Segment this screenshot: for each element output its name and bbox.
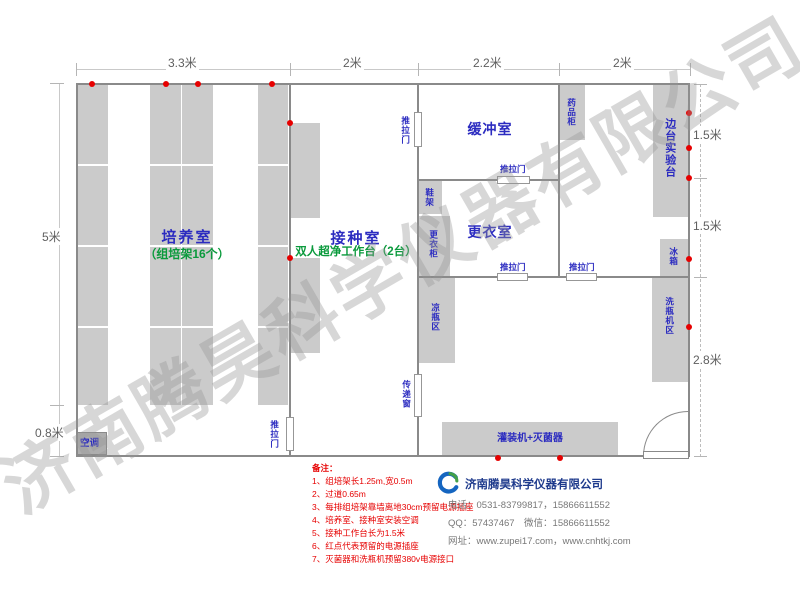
tissue-culture-rack-strip	[78, 85, 108, 405]
dim-tick	[559, 63, 560, 76]
shoe-rack-label: 鞋架	[424, 188, 435, 207]
dim-tick	[290, 63, 291, 76]
pass-window-symbol	[414, 374, 422, 417]
air-conditioner-label: 空调	[80, 438, 99, 450]
medicine-cabinet-label: 药品柜	[566, 98, 577, 127]
power-socket-dot	[686, 145, 692, 151]
sliding-door-symbol	[497, 176, 530, 184]
power-socket-dot	[287, 120, 293, 126]
dim-label-left-1: 5米	[40, 228, 63, 245]
power-socket-dot	[686, 110, 692, 116]
company-name: 济南腾昊科学仪器有限公司	[465, 476, 603, 492]
dim-tick	[690, 63, 691, 76]
power-socket-dot	[89, 81, 95, 87]
dim-tick	[418, 63, 419, 76]
company-qq: QQ：57437467 微信：15866611552	[448, 515, 610, 529]
sliding-door-symbol	[286, 417, 294, 451]
fridge-label: 冰箱	[668, 247, 679, 266]
power-socket-dot	[495, 455, 501, 461]
power-socket-dot	[195, 81, 201, 87]
wardrobe-label: 更衣柜	[428, 230, 439, 259]
dim-tick	[76, 63, 77, 76]
logo-swirl-icon	[436, 470, 461, 495]
wall-changing-bottom	[418, 276, 690, 278]
swing-door-leaf	[643, 451, 689, 459]
dim-tick	[50, 405, 64, 406]
dim-tick	[694, 178, 707, 179]
sliding-door-label: 推拉门	[500, 164, 526, 175]
buffer-room-label: 缓冲室	[440, 119, 540, 139]
power-socket-dot	[163, 81, 169, 87]
sliding-door-symbol	[497, 273, 528, 281]
dim-label-right-1: 1.5米	[691, 126, 724, 143]
dim-label-top-3: 2.2米	[471, 54, 504, 71]
sliding-door-symbol	[566, 273, 597, 281]
power-socket-dot	[686, 324, 692, 330]
dim-line-left	[59, 83, 60, 457]
dim-label-top-1: 3.3米	[166, 54, 199, 71]
dim-tick	[694, 277, 707, 278]
note-item: 7、灭菌器和洗瓶机预留380v电源接口	[312, 553, 474, 566]
power-socket-dot	[557, 455, 563, 461]
clean-workbench-upper	[291, 123, 320, 218]
dim-label-left-2: 0.8米	[33, 424, 66, 441]
power-socket-dot	[686, 256, 692, 262]
power-socket-dot	[269, 81, 275, 87]
side-bench-label: 边台实验台	[662, 118, 676, 178]
power-socket-dot	[287, 255, 293, 261]
company-phone: 电话：0531-83799817，15866611552	[448, 497, 610, 511]
inoculation-room-sublabel: 双人超净工作台（2台）	[283, 243, 429, 259]
culture-room-sublabel: （组培架16个）	[122, 245, 252, 262]
dim-label-top-4: 2米	[611, 54, 634, 71]
sliding-door-label: 推拉门	[500, 262, 526, 273]
sliding-door-symbol	[414, 112, 422, 147]
dim-tick	[50, 456, 64, 457]
company-logo	[436, 470, 461, 495]
dim-tick	[50, 83, 64, 84]
dim-label-right-2: 1.5米	[691, 217, 724, 234]
sliding-door-label: 推拉门	[269, 420, 280, 449]
dim-tick	[694, 84, 707, 85]
filler-sterilizer-label: 灌装机+灭菌器	[442, 433, 618, 446]
floor-plan-canvas: 3.3米 2米 2.2米 2米 5米 0.8米 1.5米 1.5米 2.8米	[0, 0, 800, 600]
dim-label-right-3: 2.8米	[691, 351, 724, 368]
sliding-door-label: 推拉门	[400, 116, 411, 145]
pass-window-label: 传递窗	[401, 380, 412, 409]
clean-workbench-lower	[291, 258, 320, 353]
changing-room-label: 更衣室	[440, 222, 540, 242]
culture-room-label: 培养室	[137, 226, 237, 247]
power-socket-dot	[686, 175, 692, 181]
cool-bottle-area-label: 凉瓶区	[430, 303, 441, 332]
washer-area-label: 洗瓶机区	[664, 297, 675, 335]
dim-label-top-2: 2米	[341, 54, 364, 71]
dim-tick	[694, 456, 707, 457]
company-website: 网址：www.zupei17.com，www.cnhtkj.com	[448, 533, 631, 547]
sliding-door-label: 推拉门	[569, 262, 595, 273]
